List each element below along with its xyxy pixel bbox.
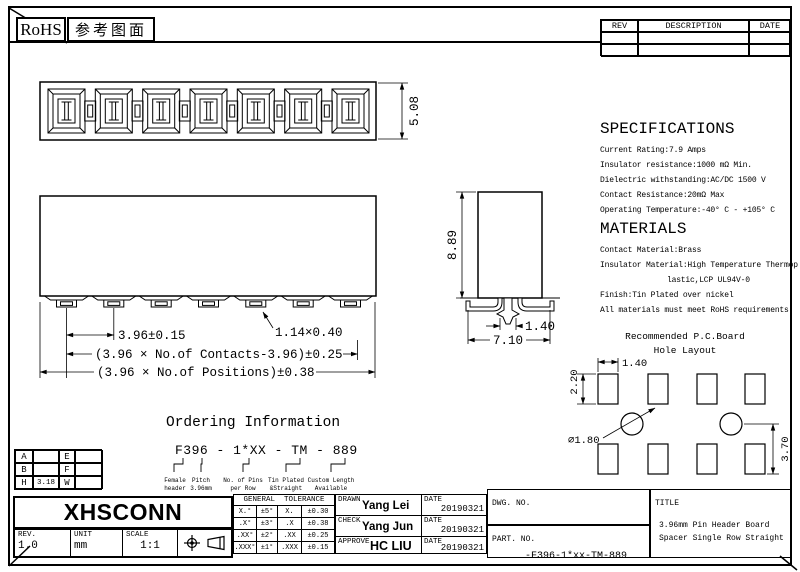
signoff-row-approve: APPROVE HC LIU DATE 20190321 <box>336 537 486 554</box>
rev-cell-empty <box>638 44 749 57</box>
specifications-block: SPECIFICATIONS Current Rating:7.9 Amps I… <box>600 120 795 318</box>
date-label: DATE <box>424 538 442 546</box>
drawn-name: Yang Lei <box>362 500 409 512</box>
signoff-row-drawn: DRAWN Yang Lei DATE 20190321 <box>336 495 486 516</box>
legend-plating-1: Tin Plated <box>268 477 304 484</box>
date-col-header: DATE <box>749 20 791 32</box>
front-view-drawing: 3.96±0.15 1.14×0.40 (3.96 × No.of Contac… <box>36 192 424 388</box>
signoff-table: DRAWN Yang Lei DATE 20190321 CHECK Yang … <box>335 494 487 554</box>
material-contact: Contact Material:Brass <box>600 243 795 258</box>
rev-cell-empty <box>638 32 749 44</box>
rev-value: 1.0 <box>18 540 67 552</box>
revision-table: REV DESCRIPTION DATE <box>600 19 790 56</box>
signoff-row-check: CHECK Yang Jun DATE 20190321 <box>336 516 486 537</box>
date-label: DATE <box>424 496 442 504</box>
drawing-sheet: RoHS 参考图面 REV DESCRIPTION DATE <box>0 0 800 572</box>
pcb-dim-lines <box>577 358 779 474</box>
dim-key-W: W <box>59 476 75 489</box>
spec-contact-resistance: Contact Resistance:20mΩ Max <box>600 188 795 203</box>
date-label: DATE <box>424 517 442 525</box>
spec-operating-temp: Operating Temperature:-40° C - +105° C <box>600 203 795 218</box>
pcb-hole-diameter-label: ∅1.80 <box>568 435 600 447</box>
rev-cell-empty <box>749 44 791 57</box>
dim-key-E: E <box>59 450 75 463</box>
pcb-holes <box>598 374 765 474</box>
pcb-hole-width-label: 1.40 <box>622 358 647 370</box>
rev-label: REV. <box>18 531 67 539</box>
dim-5-08-lines <box>378 83 408 139</box>
ordering-title: Ordering Information <box>166 415 340 431</box>
ordering-information: Ordering Information F396 - 1*XX - TM - … <box>150 406 412 498</box>
ordering-part-format: F396 - 1*XX - TM - 889 <box>175 443 358 458</box>
scale-label: SCALE <box>126 531 174 539</box>
legend-female-2: header <box>164 485 186 492</box>
company-logo: XHSCONN <box>64 499 183 526</box>
material-rohs-note: All materials must meet RoHS requirement… <box>600 303 795 318</box>
legend-pins-1: No. of Pins <box>223 477 263 484</box>
reference-drawing-badge: 参考图面 <box>67 17 155 42</box>
tolerance-header: GENERAL TOLERANCE <box>234 495 334 506</box>
materials-title: MATERIALS <box>600 220 795 239</box>
check-label: CHECK <box>338 517 361 525</box>
general-tolerance-table: GENERAL TOLERANCE X.°±5° X.±0.30 .X°±3° … <box>233 494 335 554</box>
spec-insulator-resistance: Insulator resistance:1000 mΩ Min. <box>600 158 795 173</box>
tolerance-row: .XX°±2° .XX±0.25 <box>234 530 334 542</box>
material-insulator-cont: lastic,LCP UL94V-0 <box>600 273 795 288</box>
rev-cell: REV. 1.0 <box>15 530 71 556</box>
socket-cavities <box>48 89 369 133</box>
scale-cell: SCALE 1:1 <box>123 530 178 556</box>
dim-positions-span-label: (3.96 × No.of Positions)±0.38 <box>97 366 315 380</box>
dim-top-height-label: 5.08 <box>408 96 422 126</box>
legend-length-2: Available <box>315 485 348 492</box>
dim-key-F: F <box>59 463 75 476</box>
drawn-label: DRAWN <box>338 496 361 504</box>
part-no-cell: PART. NO. -F396-1*xx-TM-889 <box>487 525 650 558</box>
specifications-title: SPECIFICATIONS <box>600 120 795 139</box>
side-view-drawing: 8.89 1.40 7.10 <box>440 186 580 354</box>
material-finish: Finish:Tin Plated over nickel <box>600 288 795 303</box>
ordering-legend: Female header Pitch 3.96mm No. of Pins p… <box>164 477 355 492</box>
dwg-no-cell: DWG. NO. <box>487 489 650 525</box>
check-date: 20190321 <box>441 525 484 535</box>
tolerance-row: X.°±5° X.±0.30 <box>234 506 334 518</box>
dim-key-H: H <box>15 476 33 489</box>
dim-val-A <box>33 450 59 463</box>
part-no-label: PART. NO. <box>492 535 535 544</box>
title-label: TITLE <box>655 499 679 508</box>
dimension-key-table: A E B F H 3.18 W <box>14 449 102 490</box>
reference-label: 参考图面 <box>75 19 147 40</box>
third-angle-projection-icon <box>182 532 228 554</box>
approve-name: HC LIU <box>370 539 412 553</box>
rev-col-header: REV <box>601 20 638 32</box>
legend-plating-2: &Straight <box>270 485 302 492</box>
rohs-label: RoHS <box>20 20 62 40</box>
rev-cell-empty <box>749 32 791 44</box>
rev-cell-empty <box>601 44 638 57</box>
legend-length-1: Custom Length <box>308 477 355 484</box>
tolerance-row: .XXX°±1° .XXX±0.15 <box>234 542 334 554</box>
legend-pins-2: per Row <box>230 485 256 492</box>
rev-unit-scale-row: REV. 1.0 UNIT mm SCALE 1:1 <box>13 529 233 558</box>
top-view-drawing: 5.08 <box>36 76 424 146</box>
description-col-header: DESCRIPTION <box>638 20 749 32</box>
pcb-hole-height-label: 2.20 <box>569 369 581 394</box>
dim-pitch-label: 3.96±0.15 <box>118 329 186 343</box>
part-no-value: -F396-1*xx-TM-889 <box>492 551 645 562</box>
dim-key-A: A <box>15 450 33 463</box>
pcb-hole-layout-drawing: Recommended P.C.Board Hole Layout <box>563 326 797 490</box>
drawn-date: 20190321 <box>441 504 484 514</box>
pcb-title-line2: Hole Layout <box>654 345 717 356</box>
rohs-badge: RoHS <box>16 17 66 42</box>
pcb-title-line1: Recommended P.C.Board <box>625 331 745 342</box>
spec-current-rating: Current Rating:7.9 Amps <box>600 143 795 158</box>
dim-val-B <box>33 463 59 476</box>
front-pins <box>45 296 373 307</box>
legend-female-1: Female <box>164 477 186 484</box>
dim-contacts-span-label: (3.96 × No.of Contacts-3.96)±0.25 <box>95 348 343 362</box>
check-name: Yang Jun <box>362 521 413 533</box>
projection-symbol-cell <box>178 530 231 556</box>
spec-dielectric: Dielectric withstanding:AC/DC 1500 V <box>600 173 795 188</box>
rev-cell-empty <box>601 32 638 44</box>
dim-peg-width-label: 1.40 <box>525 320 555 334</box>
approve-date: 20190321 <box>441 543 484 553</box>
drawing-title-line1: 3.96mm Pin Header Board <box>659 519 787 532</box>
tolerance-row: .X°±3° .X±0.38 <box>234 518 334 530</box>
pcb-row-spacing-label: 3.70 <box>780 436 792 461</box>
dim-val-W <box>75 476 103 489</box>
ordering-leader-lines <box>174 458 345 472</box>
unit-label: UNIT <box>74 531 119 539</box>
company-logo-cell: XHSCONN <box>13 496 233 529</box>
dim-pin-section-label: 1.14×0.40 <box>275 326 343 340</box>
legend-pitch-1: Pitch <box>192 477 210 484</box>
scale-value: 1:1 <box>126 540 174 552</box>
legend-pitch-2: 3.96mm <box>190 485 212 492</box>
dwg-no-label: DWG. NO. <box>492 499 530 508</box>
unit-value: mm <box>74 540 119 552</box>
approve-label: APPROVE <box>338 538 370 546</box>
dim-body-depth-label: 7.10 <box>493 334 523 348</box>
dim-key-B: B <box>15 463 33 476</box>
dim-val-F <box>75 463 103 476</box>
drawing-title-cell: TITLE 3.96mm Pin Header Board Spacer Sin… <box>650 489 792 558</box>
drawing-title-line2: Spacer Single Row Straight <box>659 532 787 545</box>
dim-val-H: 3.18 <box>33 476 59 489</box>
unit-cell: UNIT mm <box>71 530 123 556</box>
dim-body-height-label: 8.89 <box>446 230 460 260</box>
material-insulator: Insulator Material:High Temperature Ther… <box>600 258 795 273</box>
dim-val-E <box>75 450 103 463</box>
